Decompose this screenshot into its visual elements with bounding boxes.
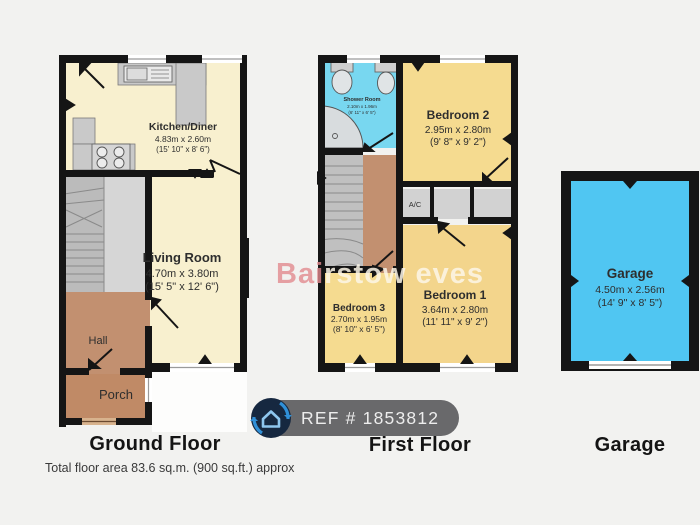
garage-label: Garage xyxy=(607,266,654,281)
kitchen-dims-m: 4.83m x 2.60m xyxy=(155,134,211,144)
bedroom2-room xyxy=(403,60,513,185)
floorplan-image: Kitchen/Diner 4.83m x 2.60m (15' 10" x 8… xyxy=(0,0,700,525)
ac-label: A/C xyxy=(409,200,422,209)
toilet-icon xyxy=(378,72,395,94)
living-label: Living Room xyxy=(143,250,222,265)
first-floor-title: First Floor xyxy=(330,434,510,457)
garage-plan: Garage 4.50m x 2.56m (14' 9" x 8' 5") xyxy=(555,165,700,377)
bedroom1-dims-m: 3.64m x 2.80m xyxy=(422,305,488,316)
bedroom3-dims-m: 2.70m x 1.95m xyxy=(331,314,387,324)
garage-dims-ft: (14' 9" x 8' 5") xyxy=(598,297,663,309)
house-refresh-icon xyxy=(250,397,292,439)
shower-dims-ft: (6' 11" x 6' 5") xyxy=(348,110,376,115)
garage-dims-m: 4.50m x 2.56m xyxy=(595,284,665,296)
stairs-area xyxy=(321,155,363,273)
hall-room xyxy=(64,292,150,374)
bedroom2-label: Bedroom 2 xyxy=(427,108,490,122)
shower-dims-m: 2.10m x 1.96m xyxy=(347,104,377,109)
basin-icon xyxy=(332,70,352,94)
stairs-landing xyxy=(104,172,150,292)
sink-icon xyxy=(124,66,172,82)
kitchen-label: Kitchen/Diner xyxy=(149,121,217,133)
ground-floor-title: Ground Floor xyxy=(55,433,255,456)
bedroom1-label: Bedroom 1 xyxy=(424,288,487,302)
garage-title: Garage xyxy=(563,434,697,457)
stove-icon xyxy=(92,144,130,170)
shower-label: Shower Room xyxy=(344,97,381,103)
bedroom3-dims-ft: (8' 10" x 6' 5") xyxy=(333,324,385,334)
living-dims-ft: (15' 5" x 12' 6") xyxy=(145,281,219,293)
living-dims-m: 4.70m x 3.80m xyxy=(146,268,219,280)
ref-number: REF # 1853812 xyxy=(301,408,439,429)
outside-area xyxy=(152,370,247,432)
first-floor-plan: Shower Room 2.10m x 1.96m (6' 11" x 6' 5… xyxy=(305,48,530,378)
chimney xyxy=(241,238,249,298)
porch-label: Porch xyxy=(99,387,133,402)
kitchen-dims-ft: (15' 10" x 8' 6") xyxy=(156,145,210,154)
bedroom1-dims-ft: (11' 11" x 9' 2") xyxy=(422,317,488,328)
bedroom2-dims-m: 2.95m x 2.80m xyxy=(425,125,491,136)
bedroom2-dims-ft: (9' 8" x 9' 2") xyxy=(430,137,486,148)
hall-label: Hall xyxy=(89,335,108,347)
bedroom3-label: Bedroom 3 xyxy=(333,303,386,314)
ref-badge: REF # 1853812 xyxy=(253,400,459,436)
total-floor-area-note: Total floor area 83.6 sq.m. (900 sq.ft.)… xyxy=(45,461,294,475)
ground-floor-plan: Kitchen/Diner 4.83m x 2.60m (15' 10" x 8… xyxy=(40,48,270,443)
